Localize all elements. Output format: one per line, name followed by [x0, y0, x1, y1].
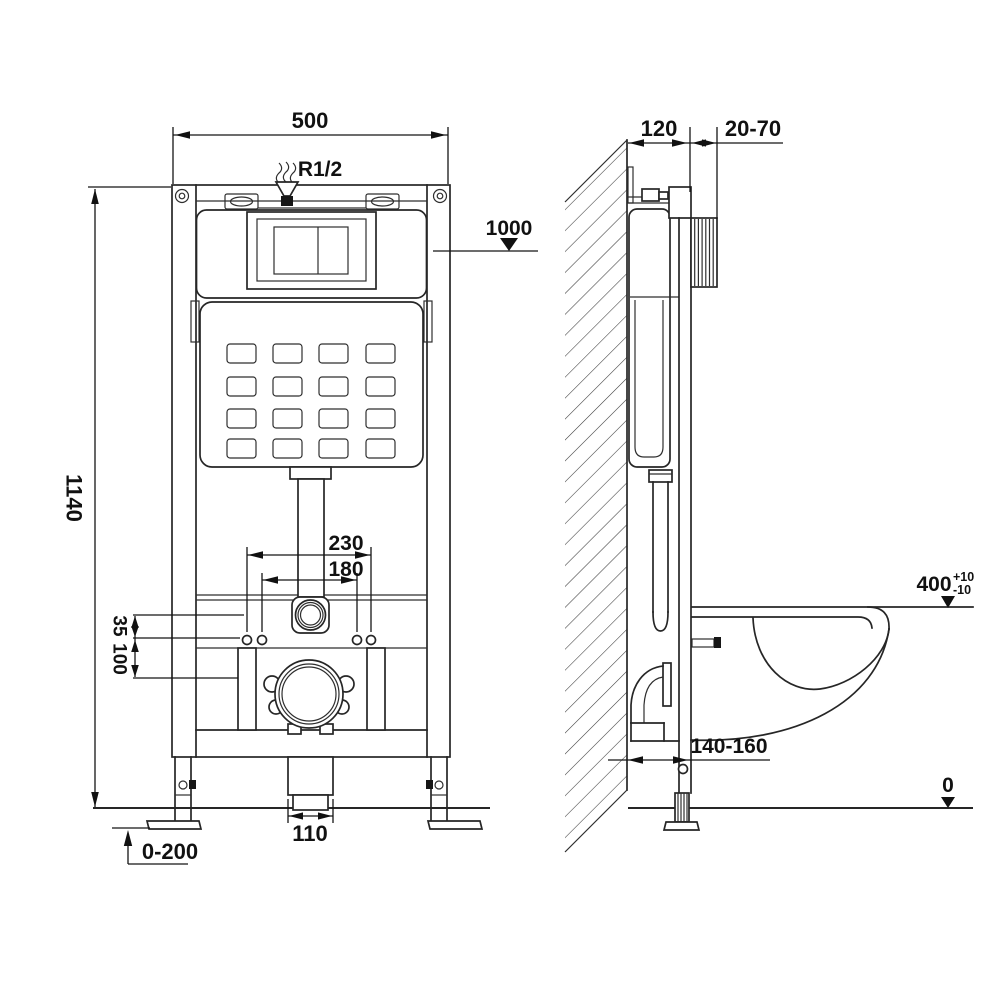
- dim-foot-adjust: 0-200: [112, 828, 198, 864]
- dim-label-140-160: 140-160: [690, 735, 767, 758]
- drain-outlet-pipe: [288, 757, 333, 810]
- cistern-top: [197, 210, 427, 298]
- dim-label-400-plus: +10: [953, 570, 974, 584]
- frame-foot-side: [664, 793, 699, 830]
- fixing-bolt-side: [692, 637, 721, 648]
- dim-floor-level: 0: [941, 774, 955, 808]
- dim-label-180: 180: [328, 558, 363, 581]
- dim-label-1000: 1000: [486, 217, 533, 240]
- cistern-profile: [629, 209, 679, 467]
- dim-label-0: 0: [942, 774, 954, 797]
- flush-plate-side: [691, 218, 717, 287]
- wall-section: [565, 140, 627, 852]
- dim-label-20-70: 20-70: [725, 116, 781, 141]
- dim-label-r12: R1/2: [298, 158, 342, 181]
- dim-label-400: 400: [916, 573, 951, 596]
- frame-member-side: [669, 187, 691, 793]
- side-view: [565, 140, 973, 852]
- drain-bend-side: [631, 663, 679, 741]
- cistern-body: [200, 302, 423, 467]
- inlet-valve: [281, 196, 293, 206]
- toilet-bowl-profile: [691, 607, 973, 740]
- dim-label-1140: 1140: [62, 474, 87, 522]
- dim-label-0-200: 0-200: [142, 839, 198, 864]
- dim-label-35: 35: [109, 615, 130, 637]
- dim-label-100: 100: [109, 643, 130, 675]
- dim-label-500: 500: [292, 108, 329, 133]
- dim-outlet-distance: 140-160: [608, 735, 770, 764]
- flush-pipe-side: [649, 470, 672, 631]
- wc-frame-drawing: 500 R1/2 1140 1000 230: [0, 0, 1000, 1000]
- front-view: [93, 162, 490, 829]
- dim-label-230: 230: [328, 532, 363, 555]
- technical-drawing-canvas: 500 R1/2 1140 1000 230: [0, 0, 1000, 1000]
- dim-frame-height: 1140: [62, 187, 172, 807]
- dim-label-110: 110: [292, 821, 328, 846]
- dim-bowl-height: 400 +10 -10: [916, 570, 974, 608]
- dim-label-400-minus: -10: [953, 583, 971, 597]
- dim-label-120: 120: [641, 116, 678, 141]
